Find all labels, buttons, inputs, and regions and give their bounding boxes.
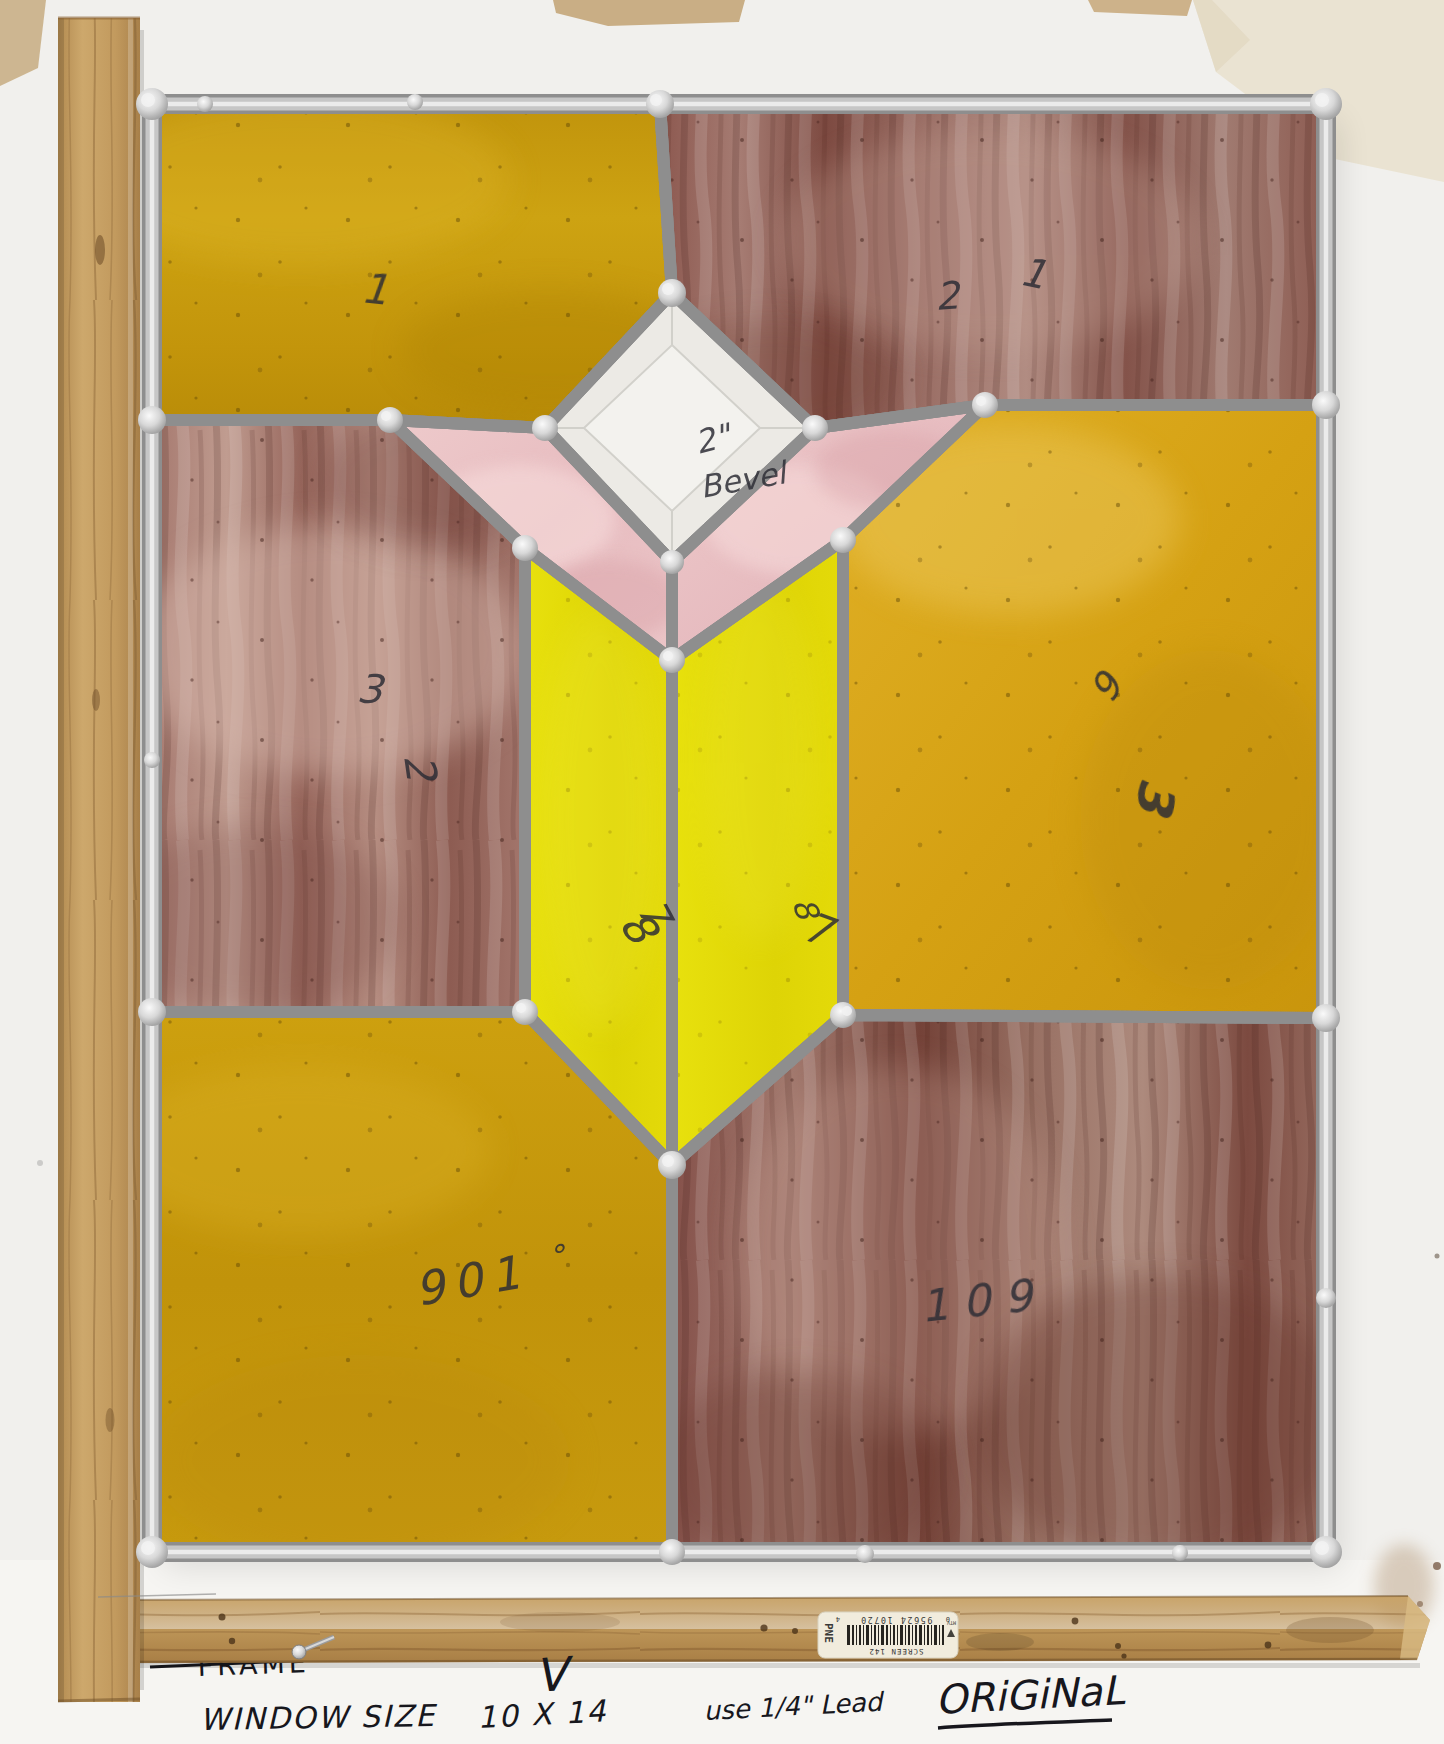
- barcode-sticker: SCREEN 142 0 95624 10720 4 PNE M: [818, 1612, 958, 1658]
- sticker-digit-right: 4: [836, 1615, 840, 1623]
- wood-strip-bottom: SCREEN 142 0 95624 10720 4 PNE M: [92, 1596, 1430, 1668]
- label-bottom-left-degree: °: [548, 1238, 565, 1273]
- sticker-logo-text: MTV: [947, 1620, 956, 1626]
- wood-strip-left: [58, 18, 144, 1702]
- wood-knot: [106, 1408, 115, 1432]
- stained-glass-photo: 3 FRAME SCREEN 142: [0, 0, 1444, 1744]
- window-size-value: 10 X 14: [477, 1693, 609, 1735]
- wood-knot: [95, 235, 105, 265]
- sticker-digits: 95624 10720: [860, 1615, 933, 1625]
- label-top-left: 1: [359, 263, 391, 315]
- sticker-side-brand: PNE: [822, 1623, 835, 1643]
- workbench-photo: 3 FRAME SCREEN 142: [0, 0, 1444, 1744]
- wood-knot: [92, 689, 100, 711]
- window-size-label: WINDOW SIZE: [200, 1698, 439, 1737]
- sticker-title: SCREEN 142: [868, 1647, 923, 1656]
- glass-pieces: [90, 95, 1345, 1570]
- stained-glass-panel: 1 2 1 2" Bevel 3 2 6 3 8 7 8 7 901 ° 109: [90, 88, 1345, 1570]
